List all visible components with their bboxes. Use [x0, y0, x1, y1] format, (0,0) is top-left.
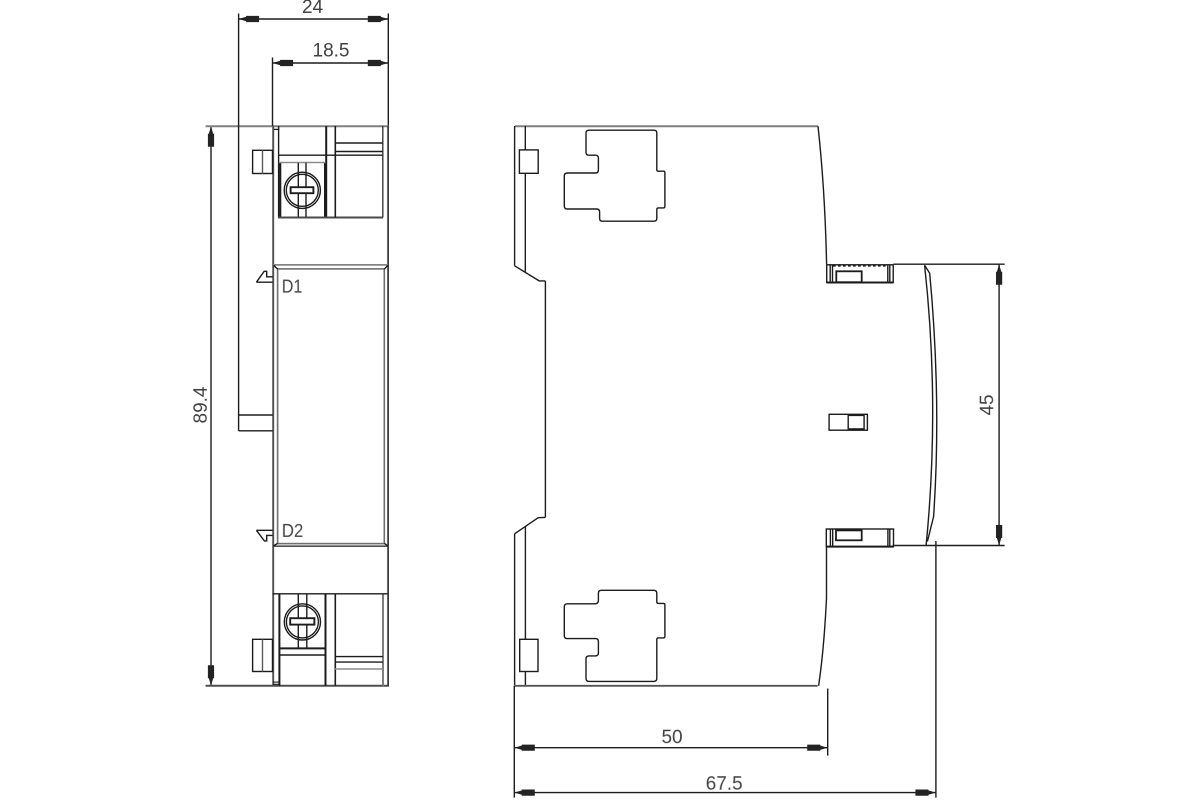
- svg-text:45: 45: [977, 394, 998, 415]
- svg-text:67.5: 67.5: [706, 774, 743, 795]
- svg-text:18.5: 18.5: [313, 40, 350, 61]
- svg-text:89.4: 89.4: [191, 386, 212, 423]
- svg-text:24: 24: [302, 0, 324, 18]
- svg-text:50: 50: [661, 727, 682, 748]
- svg-text:D2: D2: [282, 520, 304, 541]
- svg-text:D1: D1: [282, 276, 303, 297]
